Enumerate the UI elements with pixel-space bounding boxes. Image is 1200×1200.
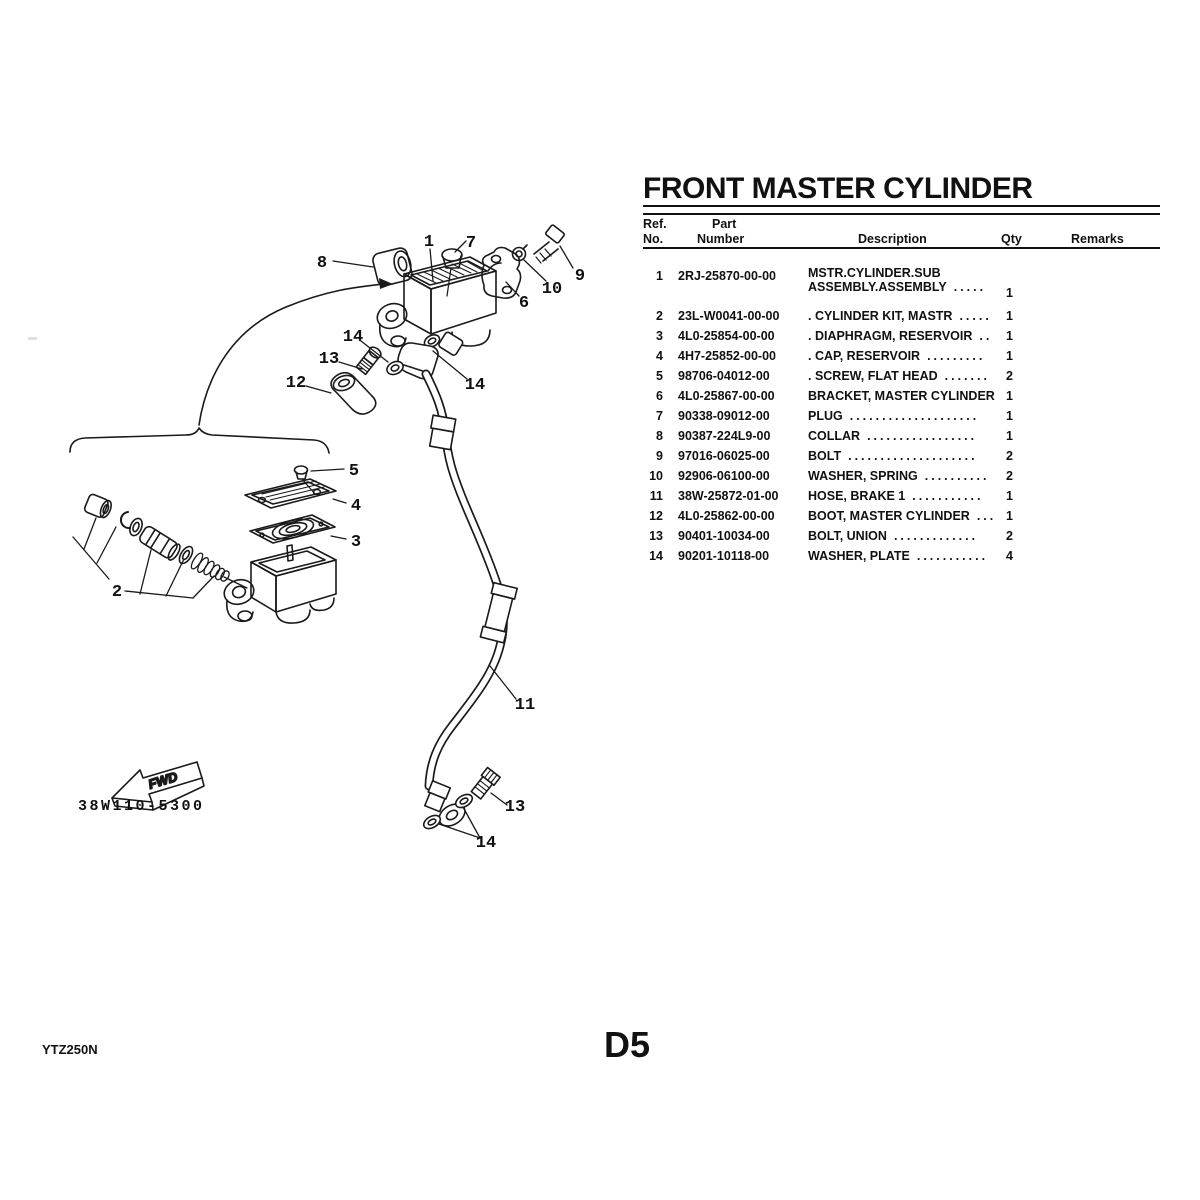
callout-14: 14 — [476, 834, 496, 853]
model-code: YTZ250N — [42, 1042, 98, 1057]
hose-elbow-drawing — [398, 343, 438, 379]
callout-12: 12 — [286, 374, 306, 393]
cylinder-kit-drawing — [73, 493, 247, 598]
callout-11: 11 — [515, 696, 535, 715]
union-bolt-drawing — [470, 767, 500, 800]
callout-14: 14 — [465, 376, 485, 395]
reservoir-cap-drawing — [245, 479, 336, 508]
drawing-number: 38W110-5300 — [78, 798, 205, 815]
callout-14: 14 — [343, 328, 363, 347]
scan-mark — [28, 337, 37, 340]
bolt-drawing — [534, 224, 565, 263]
callout-1: 1 — [424, 233, 434, 252]
callout-6: 6 — [519, 294, 529, 313]
exploded-diagram: 1 7 8 9 10 6 14 13 12 14 2 5 4 3 11 13 1… — [0, 0, 1200, 1200]
callout-2: 2 — [112, 583, 122, 602]
diaphragm-drawing — [250, 515, 335, 543]
callout-8: 8 — [317, 254, 327, 273]
page-number: D5 — [604, 1024, 650, 1066]
subassembly-brace — [70, 428, 329, 453]
catalog-page: FRONT MASTER CYLINDER Ref. Part No. Numb… — [0, 0, 1200, 1200]
callout-10: 10 — [542, 280, 562, 299]
callout-13: 13 — [505, 798, 525, 817]
collar-drawing — [371, 246, 414, 287]
callout-4: 4 — [351, 497, 361, 516]
brake-hose-drawing — [426, 374, 517, 786]
callout-13: 13 — [319, 350, 339, 369]
boot-drawing — [331, 373, 376, 414]
callout-3: 3 — [351, 533, 361, 552]
callout-5: 5 — [349, 462, 359, 481]
union-bolt-drawing — [356, 345, 383, 375]
callout-7: 7 — [466, 234, 476, 253]
callout-9: 9 — [575, 267, 585, 286]
